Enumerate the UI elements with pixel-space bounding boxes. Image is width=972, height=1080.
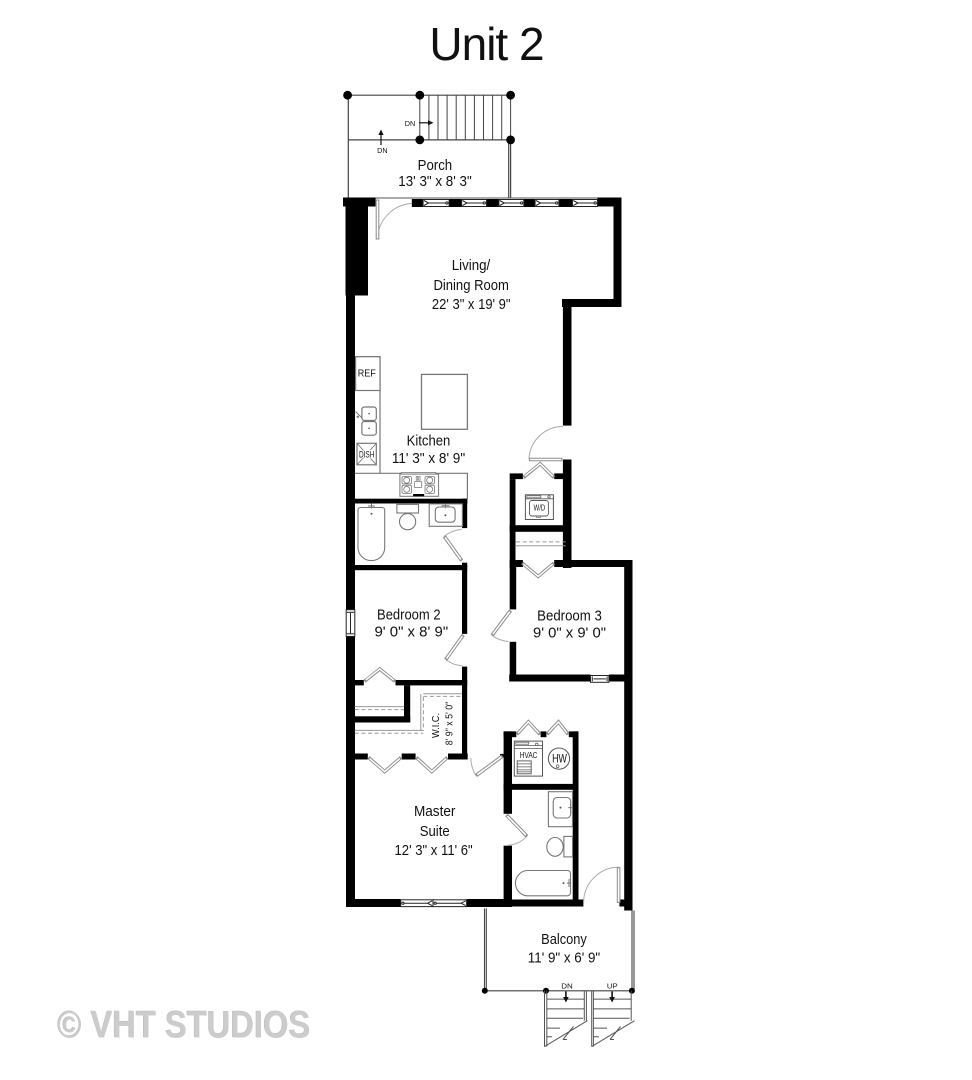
svg-text:REF: REF bbox=[358, 369, 376, 380]
svg-text:Balcony: Balcony bbox=[541, 931, 587, 948]
svg-text:DN: DN bbox=[561, 982, 573, 991]
svg-text:Kitchen: Kitchen bbox=[407, 433, 451, 450]
svg-text:UP: UP bbox=[607, 982, 618, 991]
svg-text:12' 3" x 11' 6": 12' 3" x 11' 6" bbox=[395, 842, 473, 859]
svg-text:Unit 2: Unit 2 bbox=[429, 18, 543, 70]
svg-text:HW: HW bbox=[552, 752, 567, 766]
svg-text:9' 0" x 9' 0": 9' 0" x 9' 0" bbox=[533, 625, 606, 642]
svg-text:© VHT STUDIOS: © VHT STUDIOS bbox=[58, 1005, 311, 1047]
svg-text:Master: Master bbox=[414, 803, 456, 820]
svg-text:11' 3" x 8' 9": 11' 3" x 8' 9" bbox=[392, 450, 465, 467]
svg-text:W.I.C.: W.I.C. bbox=[430, 713, 442, 738]
svg-text:Dining Room: Dining Room bbox=[433, 277, 509, 294]
svg-text:9' 0" x 8' 9": 9' 0" x 8' 9" bbox=[374, 624, 448, 641]
svg-text:13' 3" x 8' 3": 13' 3" x 8' 3" bbox=[398, 173, 472, 190]
svg-text:Bedroom 2: Bedroom 2 bbox=[377, 607, 441, 624]
svg-text:W/D: W/D bbox=[534, 503, 546, 512]
svg-text:8' 9" x 5' 0": 8' 9" x 5' 0" bbox=[445, 701, 456, 745]
svg-text:DN: DN bbox=[377, 146, 388, 155]
svg-text:DISH: DISH bbox=[359, 449, 375, 459]
svg-text:Porch: Porch bbox=[418, 157, 453, 174]
svg-text:22' 3" x 19' 9": 22' 3" x 19' 9" bbox=[432, 296, 511, 313]
svg-text:11' 9" x 6' 9": 11' 9" x 6' 9" bbox=[528, 950, 600, 967]
svg-text:Suite: Suite bbox=[420, 823, 450, 840]
svg-text:Bedroom 3: Bedroom 3 bbox=[537, 608, 602, 625]
svg-text:HVAC: HVAC bbox=[520, 751, 538, 760]
svg-text:DN: DN bbox=[405, 119, 416, 128]
svg-text:Living/: Living/ bbox=[452, 257, 491, 274]
